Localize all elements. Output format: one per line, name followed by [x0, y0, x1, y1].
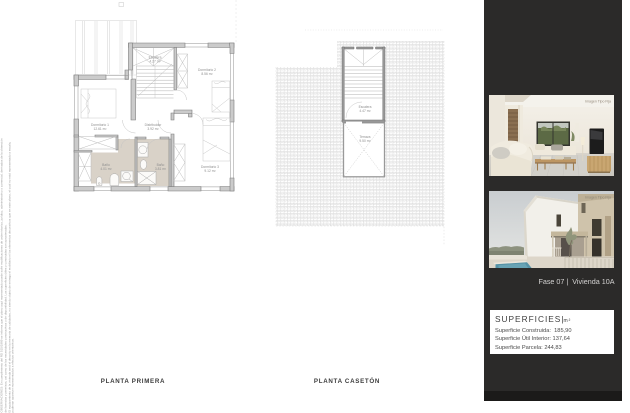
svg-text:Imagen Tipo Fija: Imagen Tipo Fija: [585, 195, 611, 199]
svg-text:3.81 m²: 3.81 m²: [155, 167, 167, 171]
svg-text:9.12 m²: 9.12 m²: [204, 169, 216, 173]
svg-text:Imagen Tipo Fija: Imagen Tipo Fija: [585, 99, 611, 103]
svg-text:9.50 m²: 9.50 m²: [359, 139, 371, 143]
svg-text:4.27 m²: 4.27 m²: [149, 60, 161, 64]
svg-text:4.01 m²: 4.01 m²: [100, 167, 112, 171]
svg-text:3.92 m²: 3.92 m²: [147, 127, 159, 131]
svg-text:4.47 m²: 4.47 m²: [359, 109, 371, 113]
svg-text:8.56 m²: 8.56 m²: [201, 72, 213, 76]
svg-text:12.61 m²: 12.61 m²: [93, 127, 107, 131]
